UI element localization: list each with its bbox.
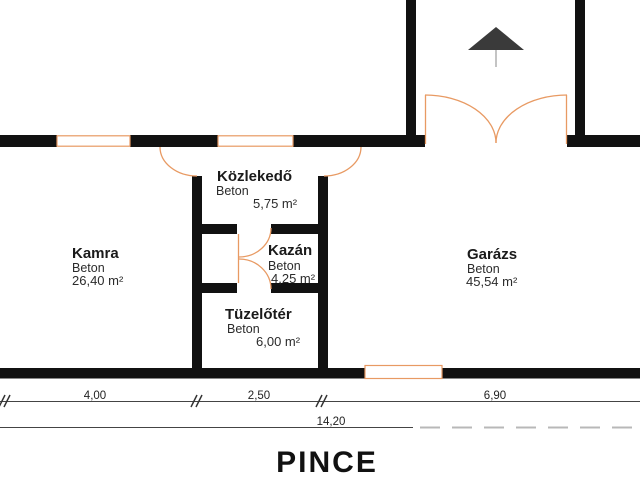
room-label-kozlekedo: Közlekedő Beton 5,75 m²: [216, 168, 298, 211]
room-name: Kazán: [268, 242, 312, 259]
window-top-right-icon: [218, 136, 293, 146]
room-area: 45,54 m²: [466, 274, 518, 289]
wall-top-2: [130, 135, 218, 147]
dimension-value: 4,00: [84, 390, 106, 402]
dimension-lines: 4,00 2,50 6,90 14,20: [0, 390, 640, 428]
room-label-tuzeloter: Tüzelőtér Beton 6,00 m²: [225, 306, 301, 349]
dimension-value: 6,90: [484, 390, 506, 402]
dimension-total: 14,20: [317, 416, 346, 428]
walls: [0, 0, 640, 379]
room-label-garazs: Garázs Beton 45,54 m²: [466, 246, 518, 289]
wall-kazan-bottom-left: [202, 283, 237, 293]
room-floor: Beton: [216, 184, 249, 198]
garage-door-right-swing-icon: [496, 95, 567, 143]
room-area: 4,25 m²: [271, 271, 316, 286]
wall-kazan-top-left: [202, 224, 237, 234]
wall-top-1: [0, 135, 57, 147]
garage-door-left-swing-icon: [425, 95, 496, 143]
room-label-kamra: Kamra Beton 26,40 m²: [72, 245, 124, 288]
room-area: 6,00 m²: [256, 334, 301, 349]
room-name: Tüzelőtér: [225, 306, 292, 323]
wall-top-3: [293, 135, 425, 147]
window-bottom-icon: [365, 366, 442, 379]
room-floor: Beton: [227, 322, 260, 336]
room-label-kazan: Kazán Beton 4,25 m²: [268, 242, 316, 286]
wall-bottom-left: [0, 368, 365, 379]
room-name: Kamra: [72, 245, 119, 262]
wall-kamra-divider: [192, 176, 202, 368]
room-name: Közlekedő: [217, 168, 292, 185]
room-area: 5,75 m²: [253, 196, 298, 211]
door-kamra-icon: [160, 147, 197, 176]
page-title: PINCE: [276, 446, 378, 479]
door-kazan-upper-icon: [239, 228, 271, 257]
wall-top-4: [567, 135, 640, 147]
north-arrow-icon: [468, 27, 524, 67]
wall-garazs-divider: [318, 176, 328, 368]
room-name: Garázs: [467, 246, 517, 263]
wall-stub-right: [575, 0, 585, 136]
room-area: 26,40 m²: [72, 273, 124, 288]
door-kazan-lower-icon: [239, 259, 271, 289]
window-top-left-icon: [57, 136, 130, 146]
door-garazs-icon: [324, 147, 361, 176]
floor-plan: Kamra Beton 26,40 m² Közlekedő Beton 5,7…: [0, 0, 640, 480]
wall-bottom-right: [442, 368, 640, 379]
dimension-value: 2,50: [248, 390, 270, 402]
wall-kazan-top-right: [271, 224, 318, 234]
wall-stub-left: [406, 0, 416, 136]
